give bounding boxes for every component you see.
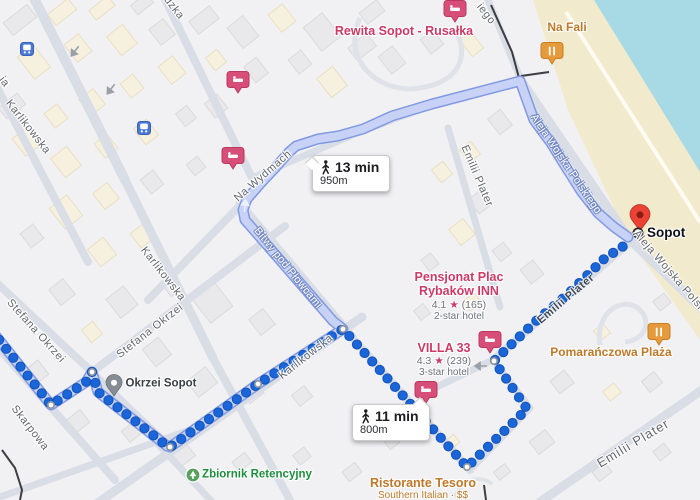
bus-stop-icon[interactable] [21,43,34,56]
route-duration: 11 min [375,408,419,424]
bus-stop-icon[interactable] [138,122,151,135]
route-callout-13min[interactable]: 13 min 950m [312,155,390,192]
park-tree-icon[interactable] [186,468,200,482]
lodging-marker[interactable] [444,1,466,23]
walking-person-icon [360,409,371,424]
route-distance: 800m [360,424,419,436]
lodging-marker[interactable] [227,72,249,94]
route-distance: 950m [320,175,379,187]
route-callout-11min[interactable]: 11 min 800m [352,404,430,441]
lodging-marker[interactable] [479,332,501,354]
map-base-graphics [0,0,700,500]
walking-person-icon [320,160,331,175]
destination-target-icon [633,228,642,237]
restaurant-marker[interactable] [648,324,670,346]
lodging-marker[interactable] [222,148,244,170]
map-canvas[interactable]: dzka ja iego Karlikowska Karlikowska Kar… [0,0,700,500]
route-duration: 13 min [335,159,379,175]
destination-label[interactable]: Sopot [647,225,685,240]
